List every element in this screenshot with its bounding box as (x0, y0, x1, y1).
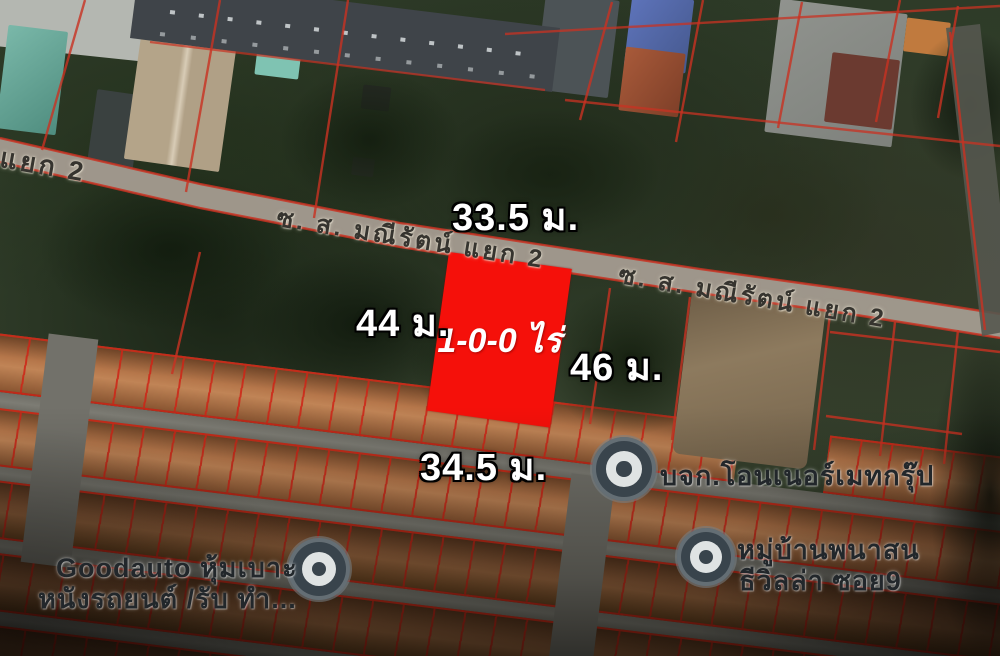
poi-label[interactable]: หนังรถยนต์ /รับ ทำ... (38, 577, 297, 620)
shed-dark-field (351, 157, 375, 178)
cadastral-line (950, 32, 985, 330)
dimension-bottom: 34.5 ม. (420, 436, 547, 497)
map-pin-icon[interactable] (677, 528, 735, 586)
building-red-roof (618, 47, 685, 118)
building-orange-roof (903, 17, 951, 56)
building-beige-roof (124, 36, 236, 172)
poi-label[interactable]: บจก.โอนเนอร์เมทกรุ๊ป (660, 454, 934, 497)
building-teal-roof (0, 25, 68, 136)
street-label: แยก 2 (0, 136, 90, 193)
building-teal-shed (254, 44, 301, 79)
shed-dark-field (361, 84, 392, 111)
cadastral-line (314, 0, 348, 218)
building-gray (534, 0, 619, 98)
dimension-top: 33.5 ม. (452, 186, 579, 247)
dimension-right: 46 ม. (570, 336, 663, 397)
satellite-map[interactable]: 1-0-0 ไร่ แยก 2 ซ. ส. มณีรัตน์ แยก 2 ซ. … (0, 0, 1000, 656)
dimension-left: 44 ม. (356, 292, 449, 353)
building-darkred-roof (824, 52, 900, 130)
map-pin-icon[interactable] (592, 437, 656, 501)
cadastral-line (830, 332, 1000, 352)
side-road (946, 24, 1000, 336)
vegetation-blob (40, 170, 300, 330)
poi-label[interactable]: ธีวิลล่า ซอย9 (739, 559, 902, 602)
plot-area-label: 1-0-0 ไร่ (437, 313, 561, 367)
